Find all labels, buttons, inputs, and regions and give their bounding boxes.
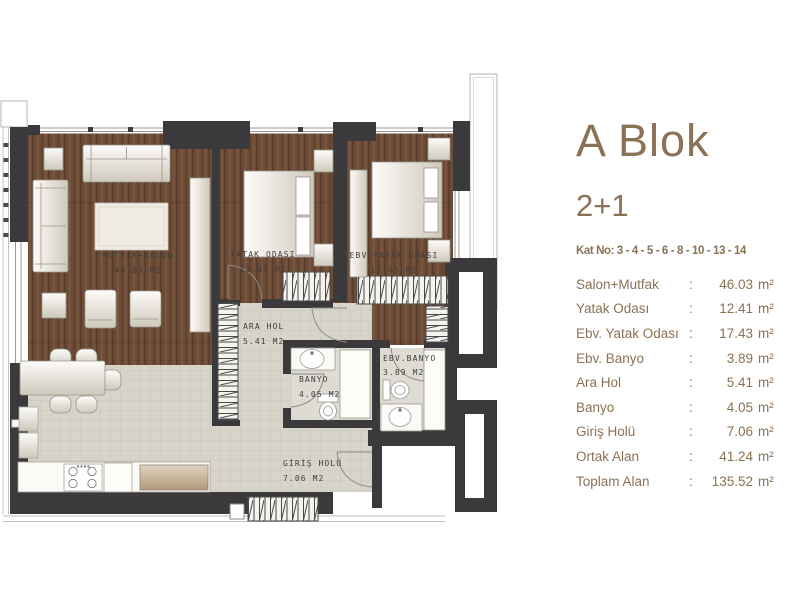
area-unit: m² (753, 424, 798, 439)
colon-separator: : (689, 277, 701, 292)
label-ebv-yatak-area: 17.43 M2 (370, 266, 417, 275)
area-table-row: Ebv. Banyo : 3.89 m² (576, 346, 798, 371)
label-banyo: BANYO (299, 375, 329, 384)
page: { "panel": { "title": "A Blok", "subtitl… (0, 0, 800, 600)
area-table-row: Ebv. Yatak Odası : 17.43 m² (576, 321, 798, 346)
label-banyo-area: 4.05 M2 (299, 390, 340, 399)
label-salon: MUTFAK+SALON (103, 251, 174, 260)
area-unit: m² (753, 277, 798, 292)
room-name: Toplam Alan (576, 474, 689, 489)
colon-separator: : (689, 424, 701, 439)
label-ara-hol: ARA HOL (243, 322, 284, 331)
area-table-row: Toplam Alan : 135.52 m² (576, 469, 798, 494)
area-table-row: Banyo : 4.05 m² (576, 395, 798, 420)
label-giris-holu-area: 7.06 M2 (283, 474, 324, 483)
area-table-row: Salon+Mutfak : 46.03 m² (576, 272, 798, 297)
colon-separator: : (689, 449, 701, 464)
label-ebv-banyo-area: 3.89 M2 (383, 368, 424, 377)
unit-type: 2+1 (576, 190, 798, 221)
room-name: Giriş Holü (576, 424, 689, 439)
area-unit: m² (753, 375, 798, 390)
label-ebv-yatak: EBV.YATAK ODASI (350, 251, 439, 260)
label-salon-area: 44.03 M2 (114, 266, 161, 275)
area-table-row: Ortak Alan : 41.24 m² (576, 444, 798, 469)
room-area-value: 4.05 (701, 400, 753, 415)
room-name: Salon+Mutfak (576, 277, 689, 292)
room-name: Ortak Alan (576, 449, 689, 464)
info-panel: A Blok 2+1 Kat No: 3 - 4 - 5 - 6 - 8 - 1… (576, 118, 798, 493)
rail-posts (4, 143, 9, 237)
colon-separator: : (689, 351, 701, 366)
label-ara-hol-area: 5.41 M2 (243, 337, 284, 346)
room-area-value: 135.52 (701, 474, 753, 489)
room-name: Ara Hol (576, 375, 689, 390)
area-table-row: Ara Hol : 5.41 m² (576, 370, 798, 395)
colon-separator: : (689, 400, 701, 415)
room-name: Ebv. Banyo (576, 351, 689, 366)
room-name: Yatak Odası (576, 301, 689, 316)
colon-separator: : (689, 301, 701, 316)
colon-separator: : (689, 474, 701, 489)
room-area-value: 3.89 (701, 351, 753, 366)
room-name: Banyo (576, 400, 689, 415)
room-area-value: 46.03 (701, 277, 753, 292)
area-table: Salon+Mutfak : 46.03 m² Yatak Odası : 12… (576, 272, 798, 493)
floor-plan: MUTFAK+SALON 44.03 M2 YATAK ODASI 12.41 … (0, 0, 545, 600)
area-unit: m² (753, 301, 798, 316)
room-area-value: 17.43 (701, 326, 753, 341)
room-area-value: 41.24 (701, 449, 753, 464)
room-name: Ebv. Yatak Odası (576, 326, 689, 341)
area-table-row: Giriş Holü : 7.06 m² (576, 420, 798, 445)
room-area-value: 12.41 (701, 301, 753, 316)
floor-numbers: Kat No: 3 - 4 - 5 - 6 - 8 - 10 - 13 - 14 (576, 245, 798, 257)
colon-separator: : (689, 375, 701, 390)
block-title: A Blok (576, 118, 798, 163)
area-unit: m² (753, 474, 798, 489)
area-table-row: Yatak Odası : 12.41 m² (576, 297, 798, 322)
label-giris-holu: GİRİŞ HOLÜ (283, 458, 342, 468)
area-unit: m² (753, 351, 798, 366)
room-area-value: 5.41 (701, 375, 753, 390)
label-ebv-banyo: EBV.BANYO (383, 354, 436, 363)
area-unit: m² (753, 400, 798, 415)
label-yatak-area: 12.41 M2 (239, 265, 286, 274)
area-unit: m² (753, 449, 798, 464)
room-area-value: 7.06 (701, 424, 753, 439)
label-yatak: YATAK ODASI (230, 250, 295, 259)
area-unit: m² (753, 326, 798, 341)
colon-separator: : (689, 326, 701, 341)
